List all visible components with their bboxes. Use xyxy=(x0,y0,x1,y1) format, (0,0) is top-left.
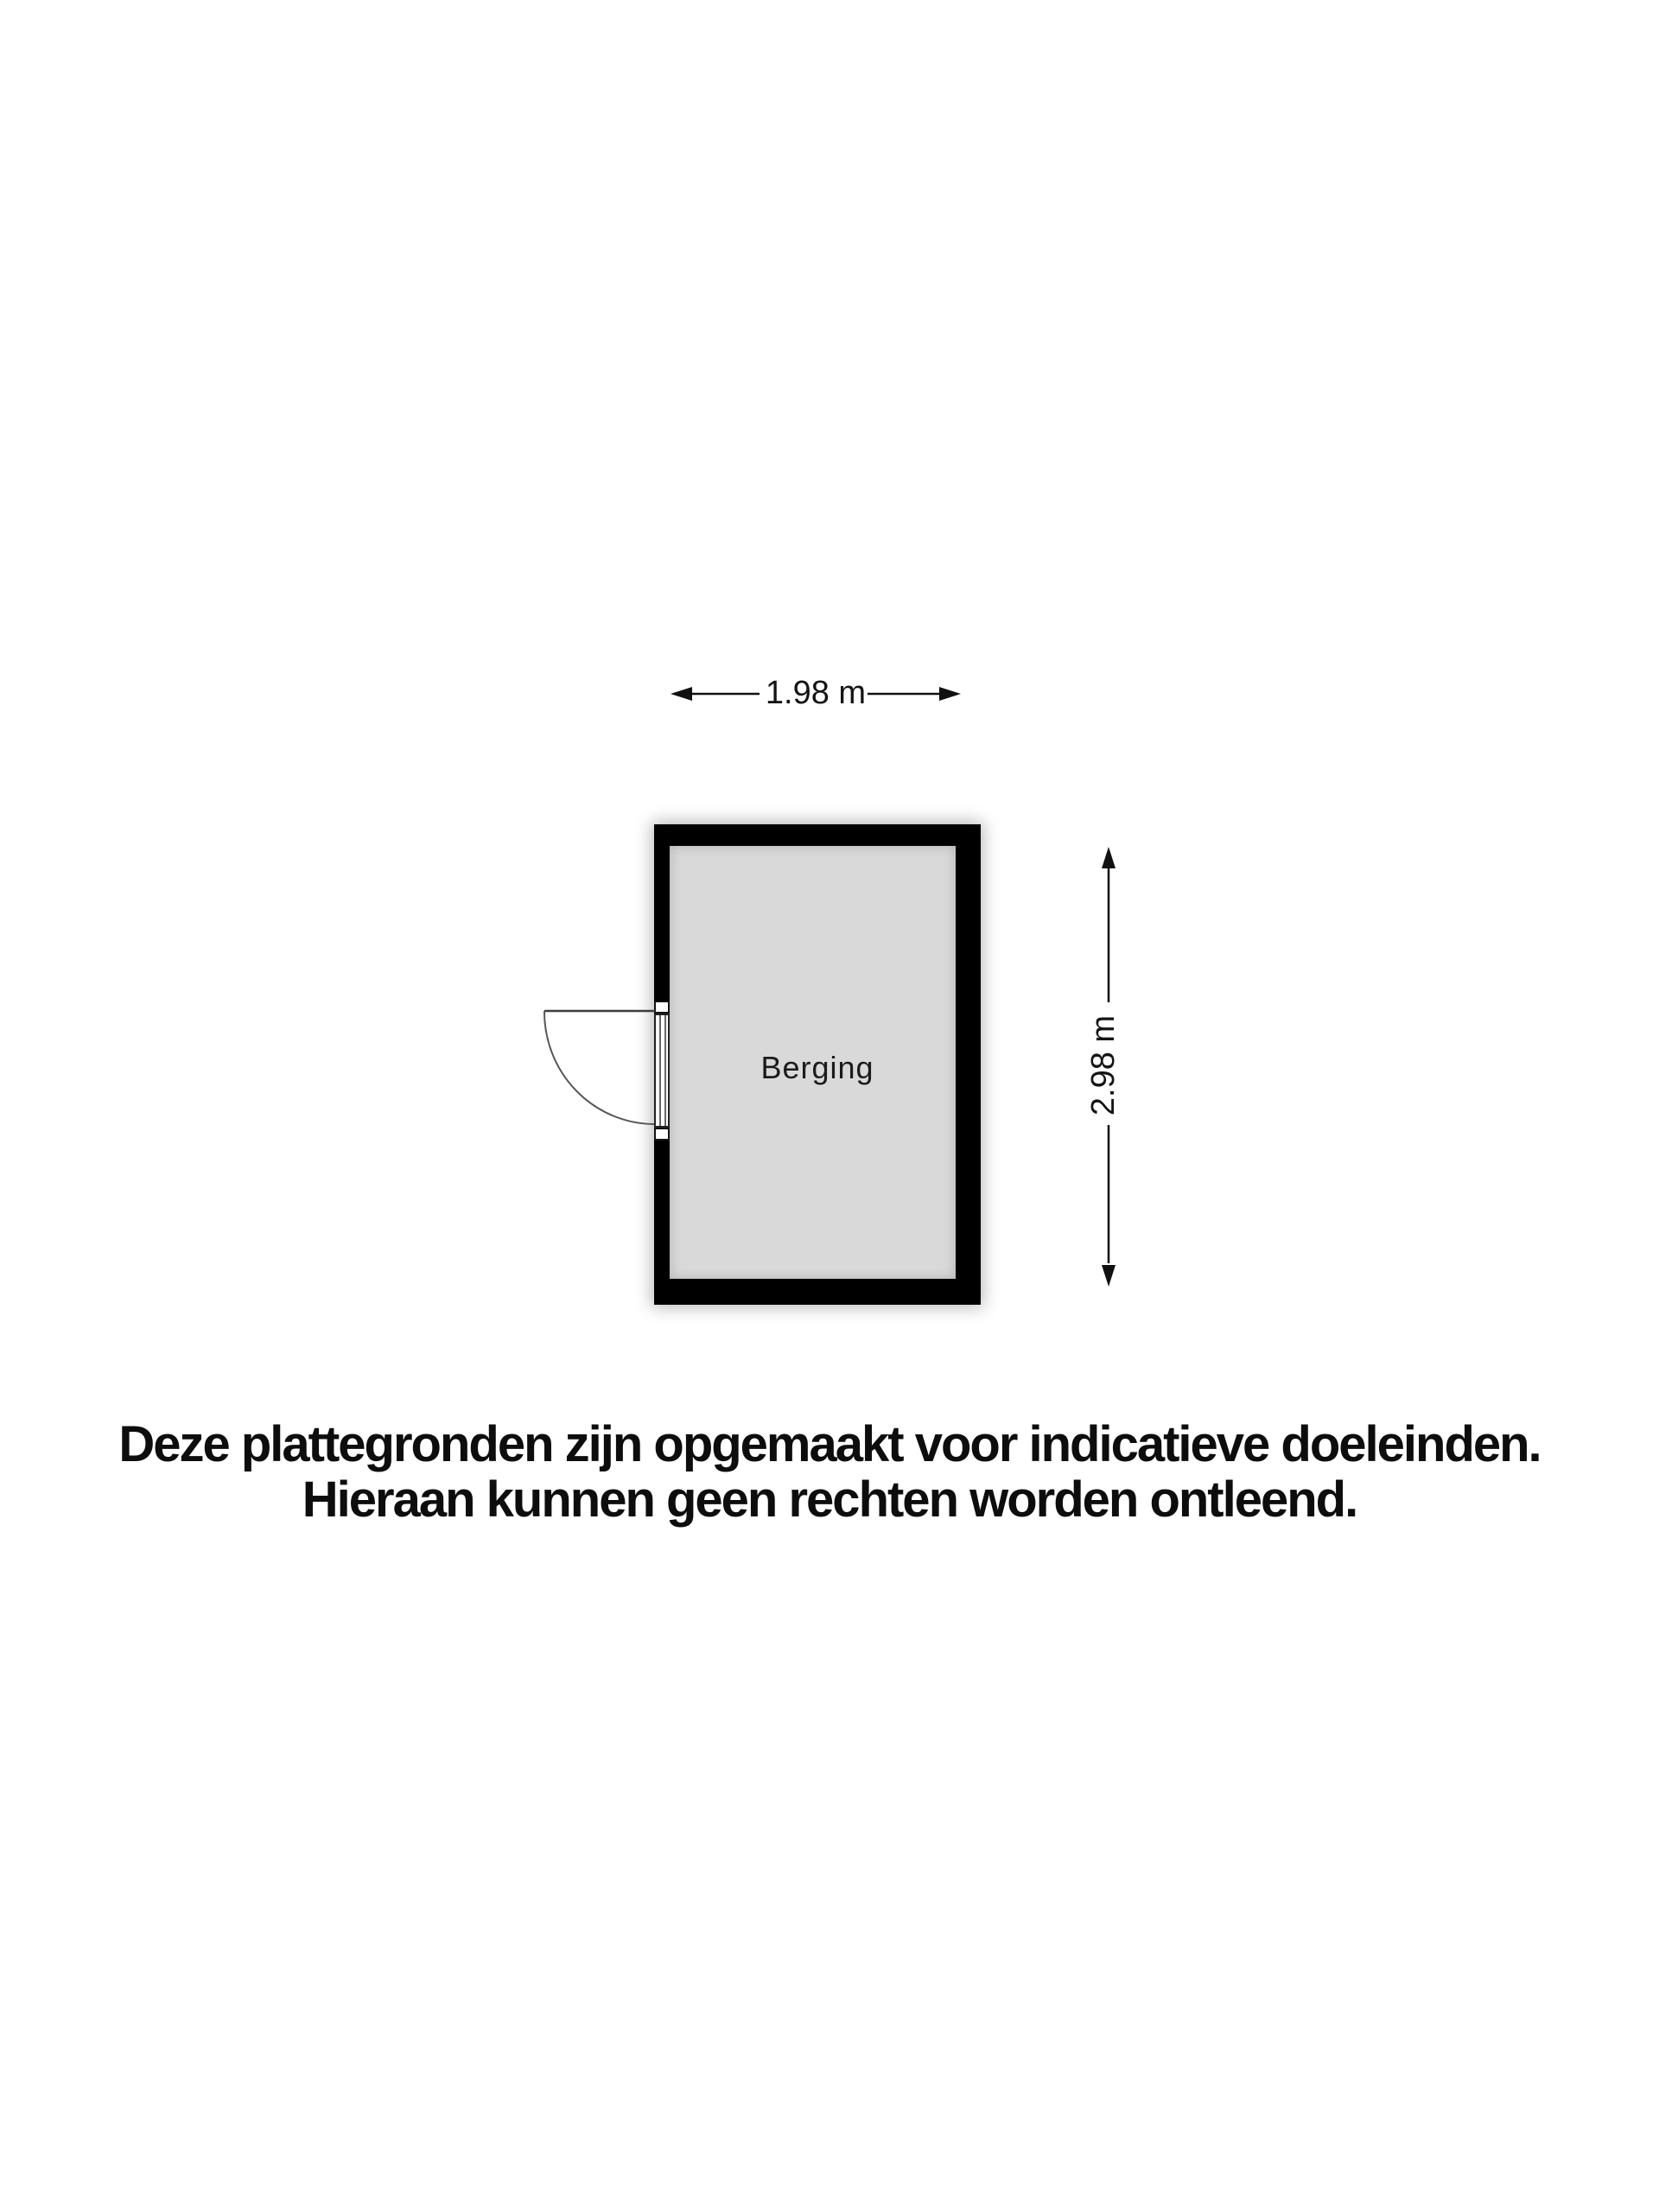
door-swing-arc-icon xyxy=(527,994,674,1141)
room-berging: Berging xyxy=(654,824,981,1305)
width-dimension-label: 1.98 m xyxy=(742,675,889,712)
room-label: Berging xyxy=(654,1050,981,1086)
floorplan-canvas: 1.98 m 2.98 m Berging Deze plattegronden… xyxy=(0,0,1659,2212)
height-dimension-label: 2.98 m xyxy=(1085,992,1122,1139)
disclaimer-line-2: Hieraan kunnen geen rechten worden ontle… xyxy=(0,1472,1659,1528)
disclaimer-line-1: Deze plattegronden zijn opgemaakt voor i… xyxy=(0,1417,1659,1472)
disclaimer-text: Deze plattegronden zijn opgemaakt voor i… xyxy=(0,1417,1659,1528)
